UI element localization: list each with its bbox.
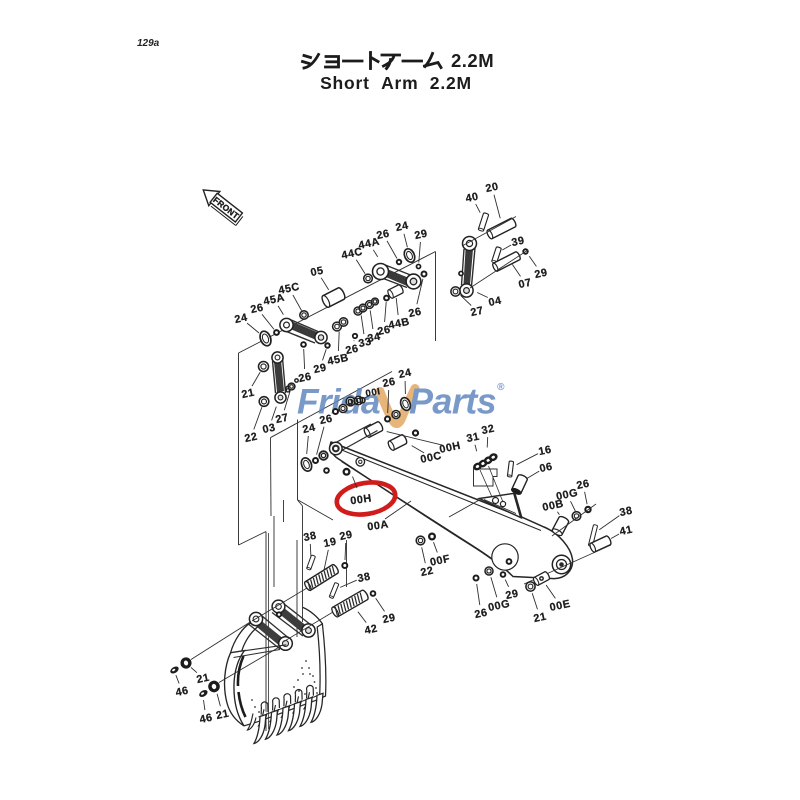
svg-text:®: ® — [497, 382, 505, 393]
svg-text:2.2M: 2.2M — [451, 50, 494, 71]
svg-text:Parts: Parts — [409, 381, 496, 422]
svg-text:129a: 129a — [137, 38, 160, 49]
svg-text:Short Arm 2.2M: Short Arm 2.2M — [320, 73, 472, 93]
